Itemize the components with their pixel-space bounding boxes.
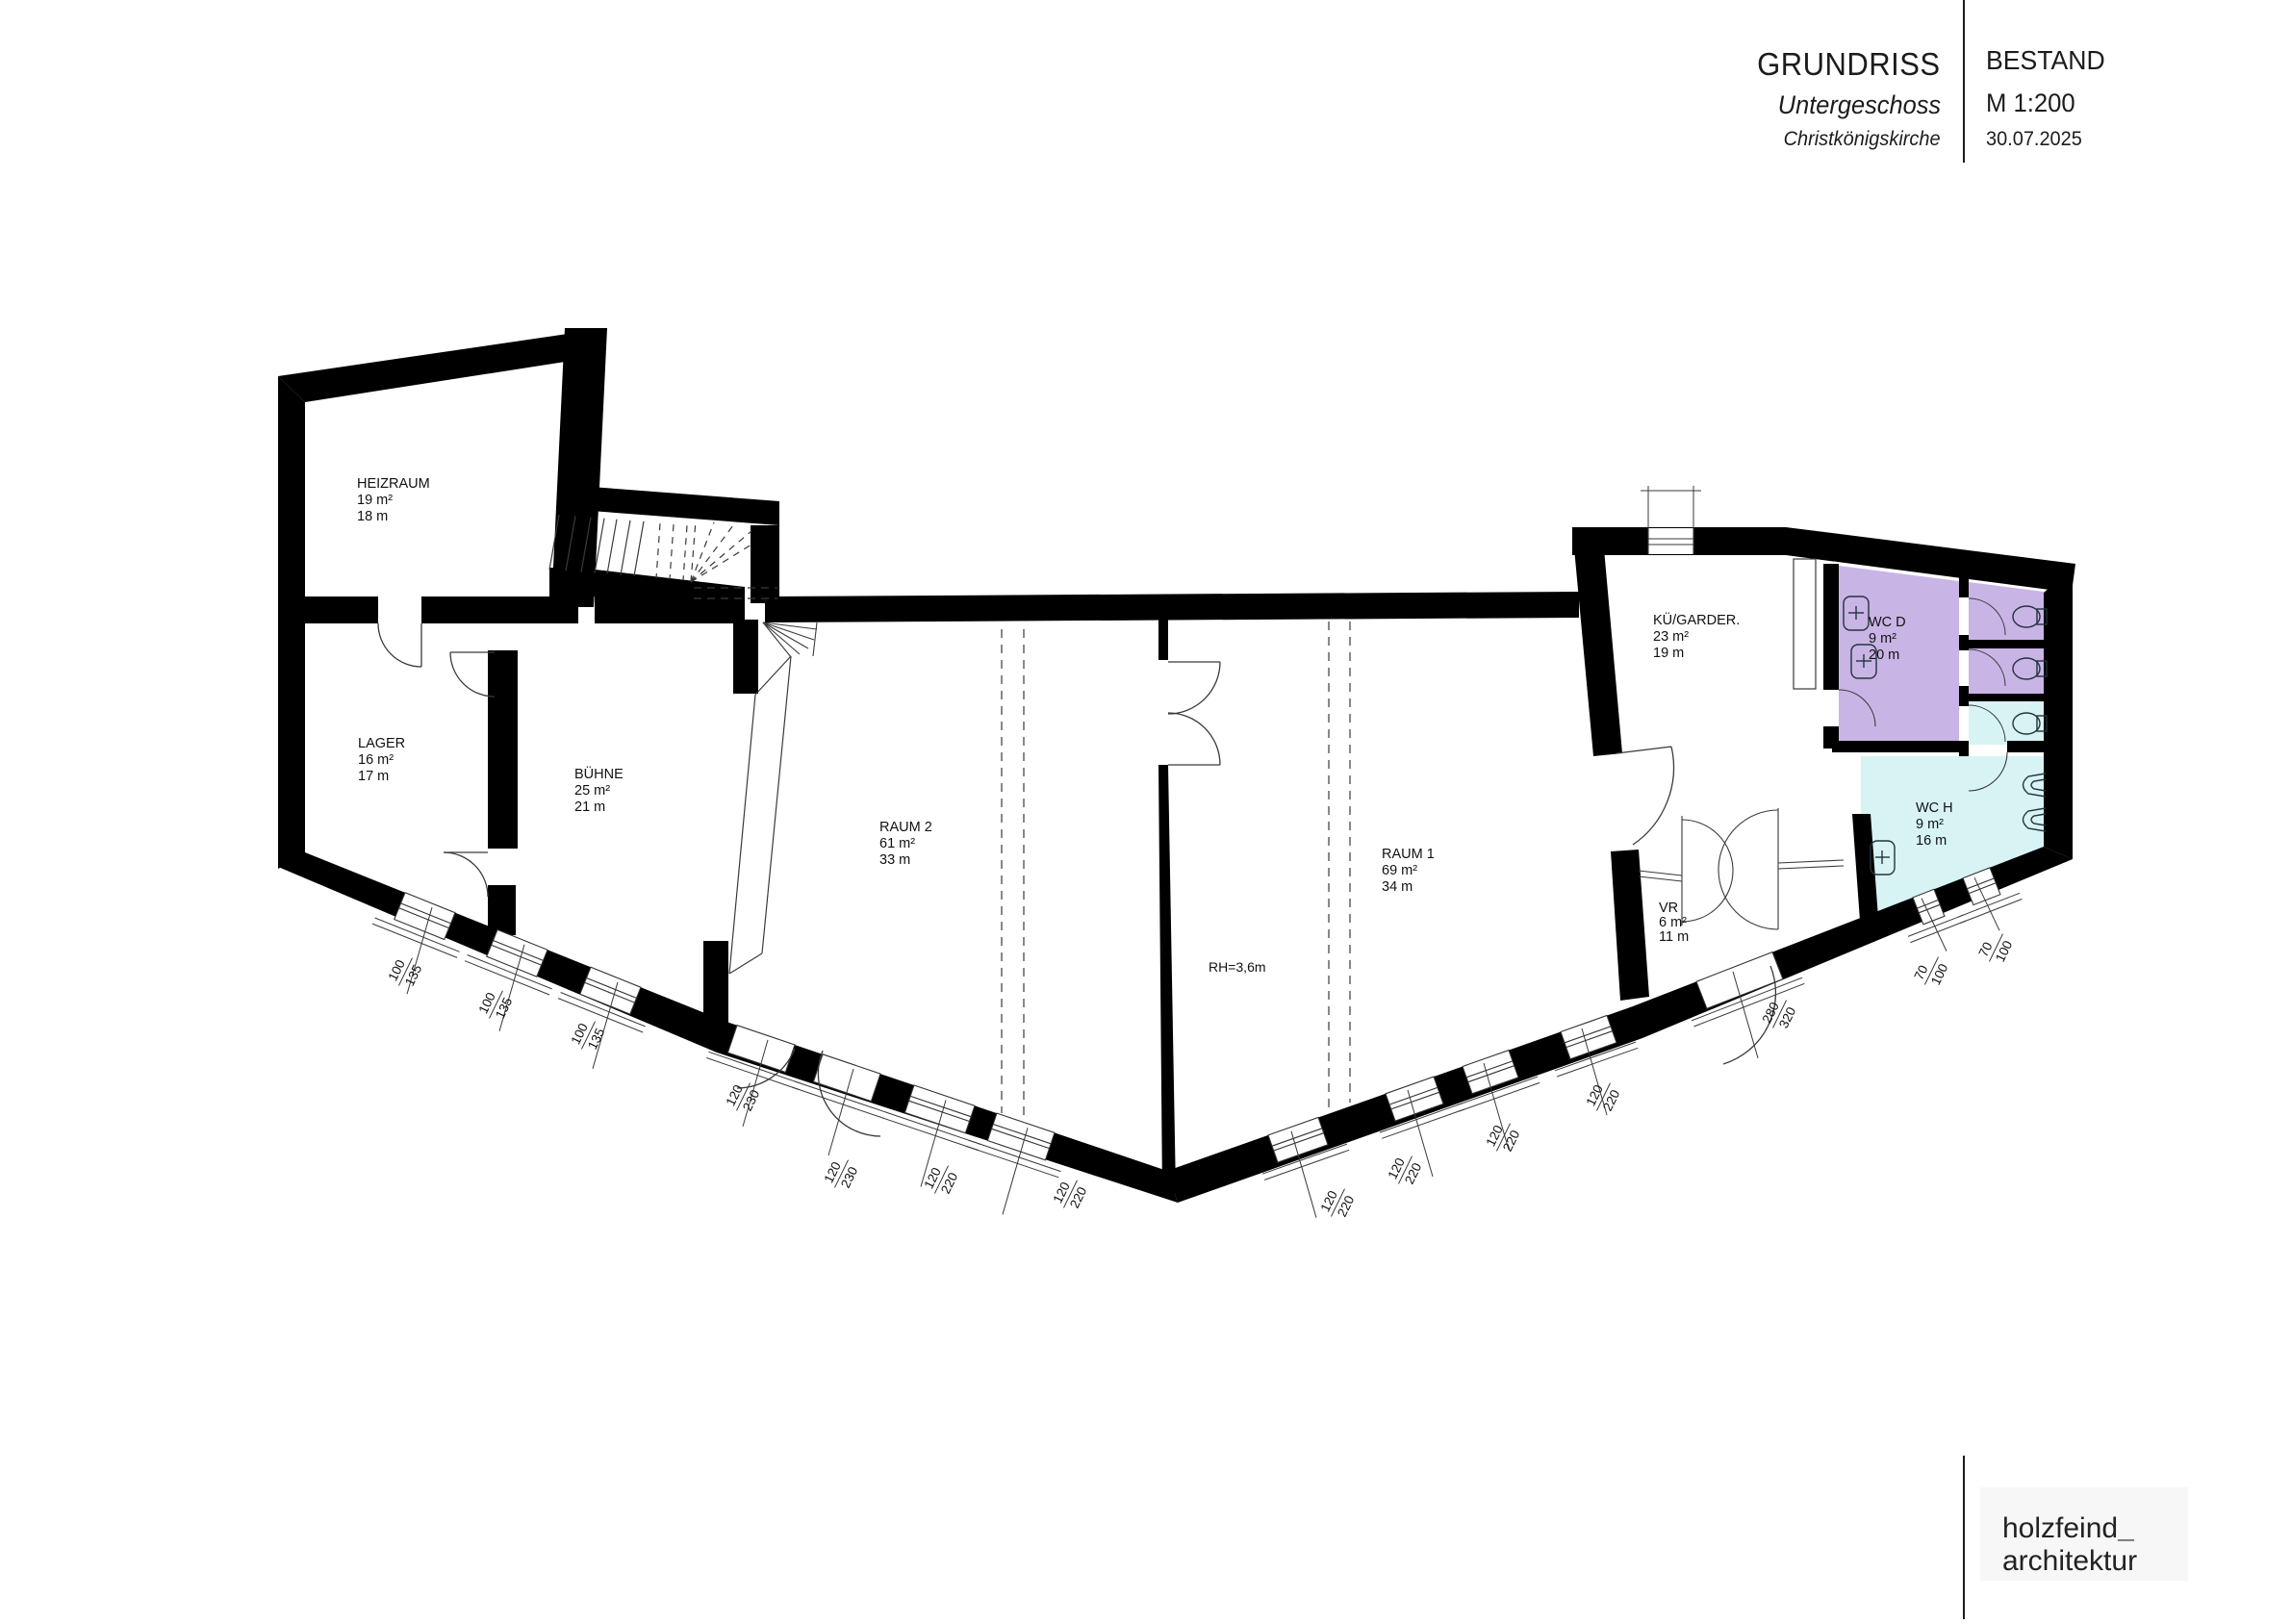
- svg-text:RH=3,6m: RH=3,6m: [1209, 959, 1266, 975]
